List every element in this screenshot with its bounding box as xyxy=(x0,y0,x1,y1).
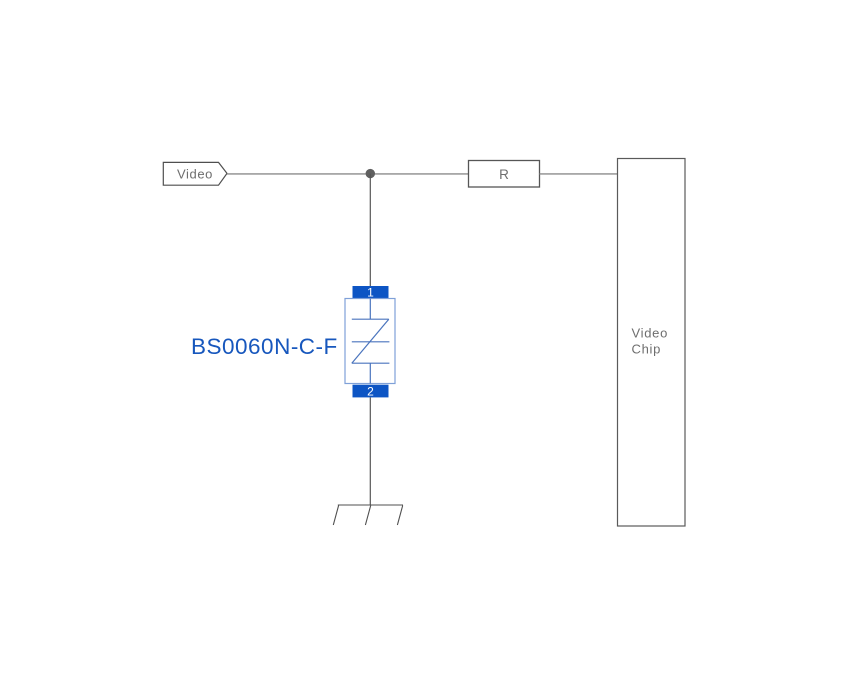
svg-text:Video: Video xyxy=(177,166,213,181)
svg-text:2: 2 xyxy=(367,384,374,398)
svg-text:BS0060N-C-F: BS0060N-C-F xyxy=(191,334,338,359)
svg-text:Chip: Chip xyxy=(632,342,662,357)
svg-text:Video: Video xyxy=(632,326,669,341)
svg-text:R: R xyxy=(499,167,509,182)
svg-text:1: 1 xyxy=(367,286,374,300)
